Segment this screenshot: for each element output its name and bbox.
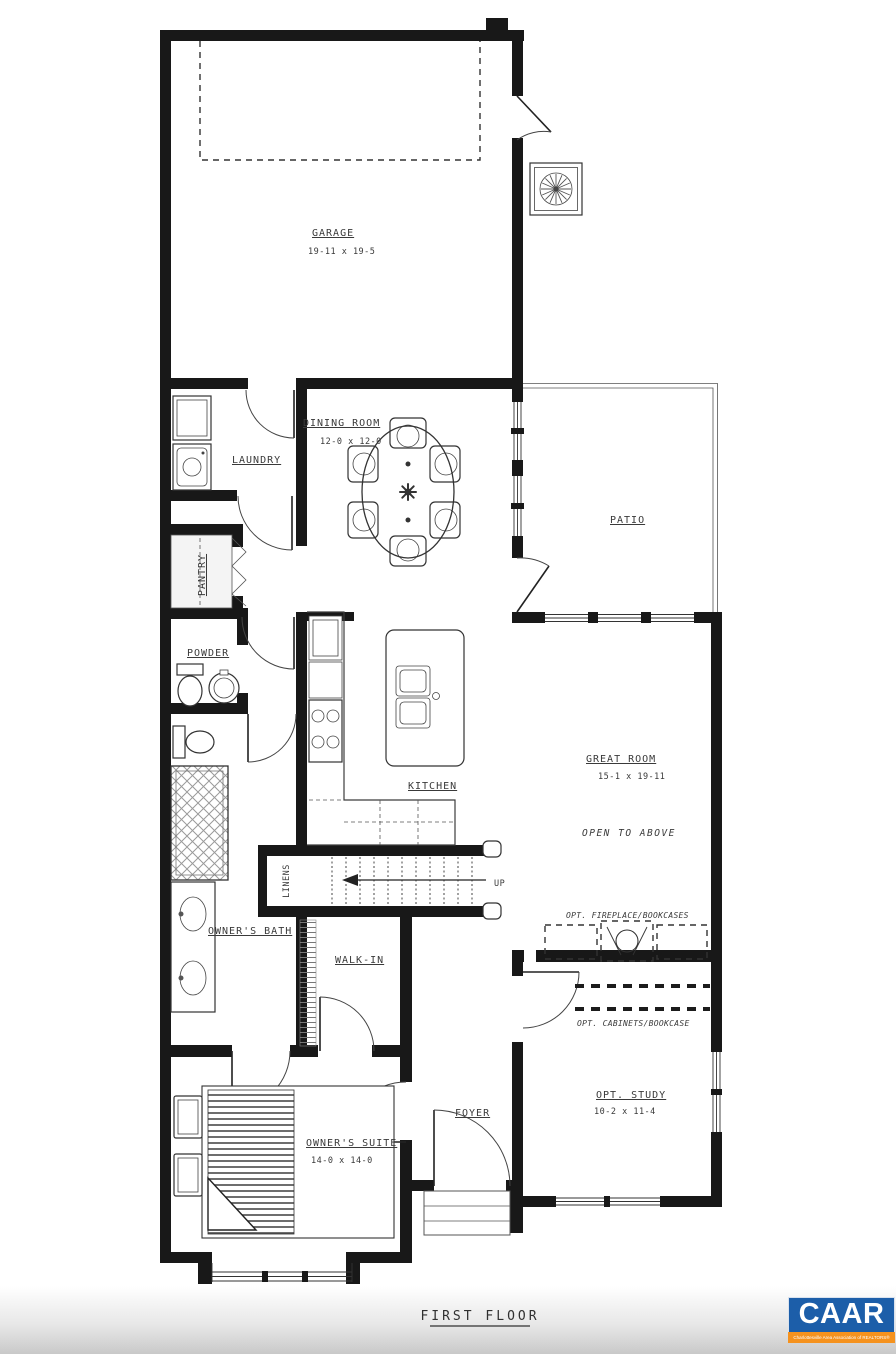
walk-in-label: WALK-IN	[335, 955, 384, 966]
study-side-window	[711, 1052, 722, 1132]
garage-label: GARAGE	[312, 228, 354, 239]
floor-plan-drawing: GARAGE 19-11 x 19-5 DINING ROOM 12-0 x 1…	[0, 0, 896, 1354]
linens-label: LINENS	[282, 864, 292, 898]
owners-suite-dims: 14-0 x 14-0	[311, 1156, 373, 1166]
great-room-windows	[545, 611, 694, 624]
range	[309, 700, 342, 762]
laundry-label: LAUNDRY	[232, 455, 281, 466]
opt-study-dims: 10-2 x 11-4	[594, 1107, 656, 1117]
dining-dims: 12-0 x 12-0	[320, 437, 382, 447]
powder-label: POWDER	[187, 648, 229, 659]
shower	[171, 766, 228, 880]
faucet-icon	[433, 693, 440, 700]
pantry-label: PANTRY	[197, 554, 208, 596]
foyer-label: FOYER	[455, 1108, 490, 1119]
great-room-label: GREAT ROOM	[586, 754, 656, 765]
caar-logo-text: CAAR	[788, 1297, 895, 1332]
study-bottom-window	[556, 1195, 660, 1208]
owners-bath-label: OWNER'S BATH	[208, 926, 292, 937]
caar-logo-tagline: Charlottesville Area Association of REAL…	[788, 1332, 895, 1343]
double-vanity	[171, 882, 215, 1012]
newel-post	[483, 841, 501, 857]
opt-study-label: OPT. STUDY	[596, 1090, 666, 1101]
dining-label: DINING ROOM	[303, 418, 380, 429]
first-floor-title: FIRST FLOOR	[420, 1309, 539, 1324]
stairs-up-label: UP	[494, 879, 505, 889]
newel-post	[483, 903, 501, 919]
powder-toilet	[177, 664, 203, 706]
patio-label: PATIO	[610, 515, 645, 526]
floor-plan-page: GARAGE 19-11 x 19-5 DINING ROOM 12-0 x 1…	[0, 0, 896, 1354]
closet-shelving	[300, 920, 316, 1046]
kitchen-label: KITCHEN	[408, 781, 457, 792]
opt-fireplace-label: OPT. FIREPLACE/BOOKCASES	[566, 911, 689, 920]
great-room-dims: 15-1 x 19-11	[598, 772, 665, 782]
garage-dims: 19-11 x 19-5	[308, 247, 375, 257]
caar-logo: CAAR Charlottesville Area Association of…	[788, 1297, 895, 1343]
kitchen-island	[386, 630, 464, 766]
owners-suite-label: OWNER'S SUITE	[306, 1138, 397, 1149]
opt-cabinets-label: OPT. CABINETS/BOOKCASE	[577, 1019, 690, 1028]
sheet-title: FIRST FLOOR	[420, 1309, 539, 1326]
open-to-above-note: OPEN TO ABOVE	[582, 828, 676, 839]
ceiling-fan-icon	[530, 163, 582, 215]
